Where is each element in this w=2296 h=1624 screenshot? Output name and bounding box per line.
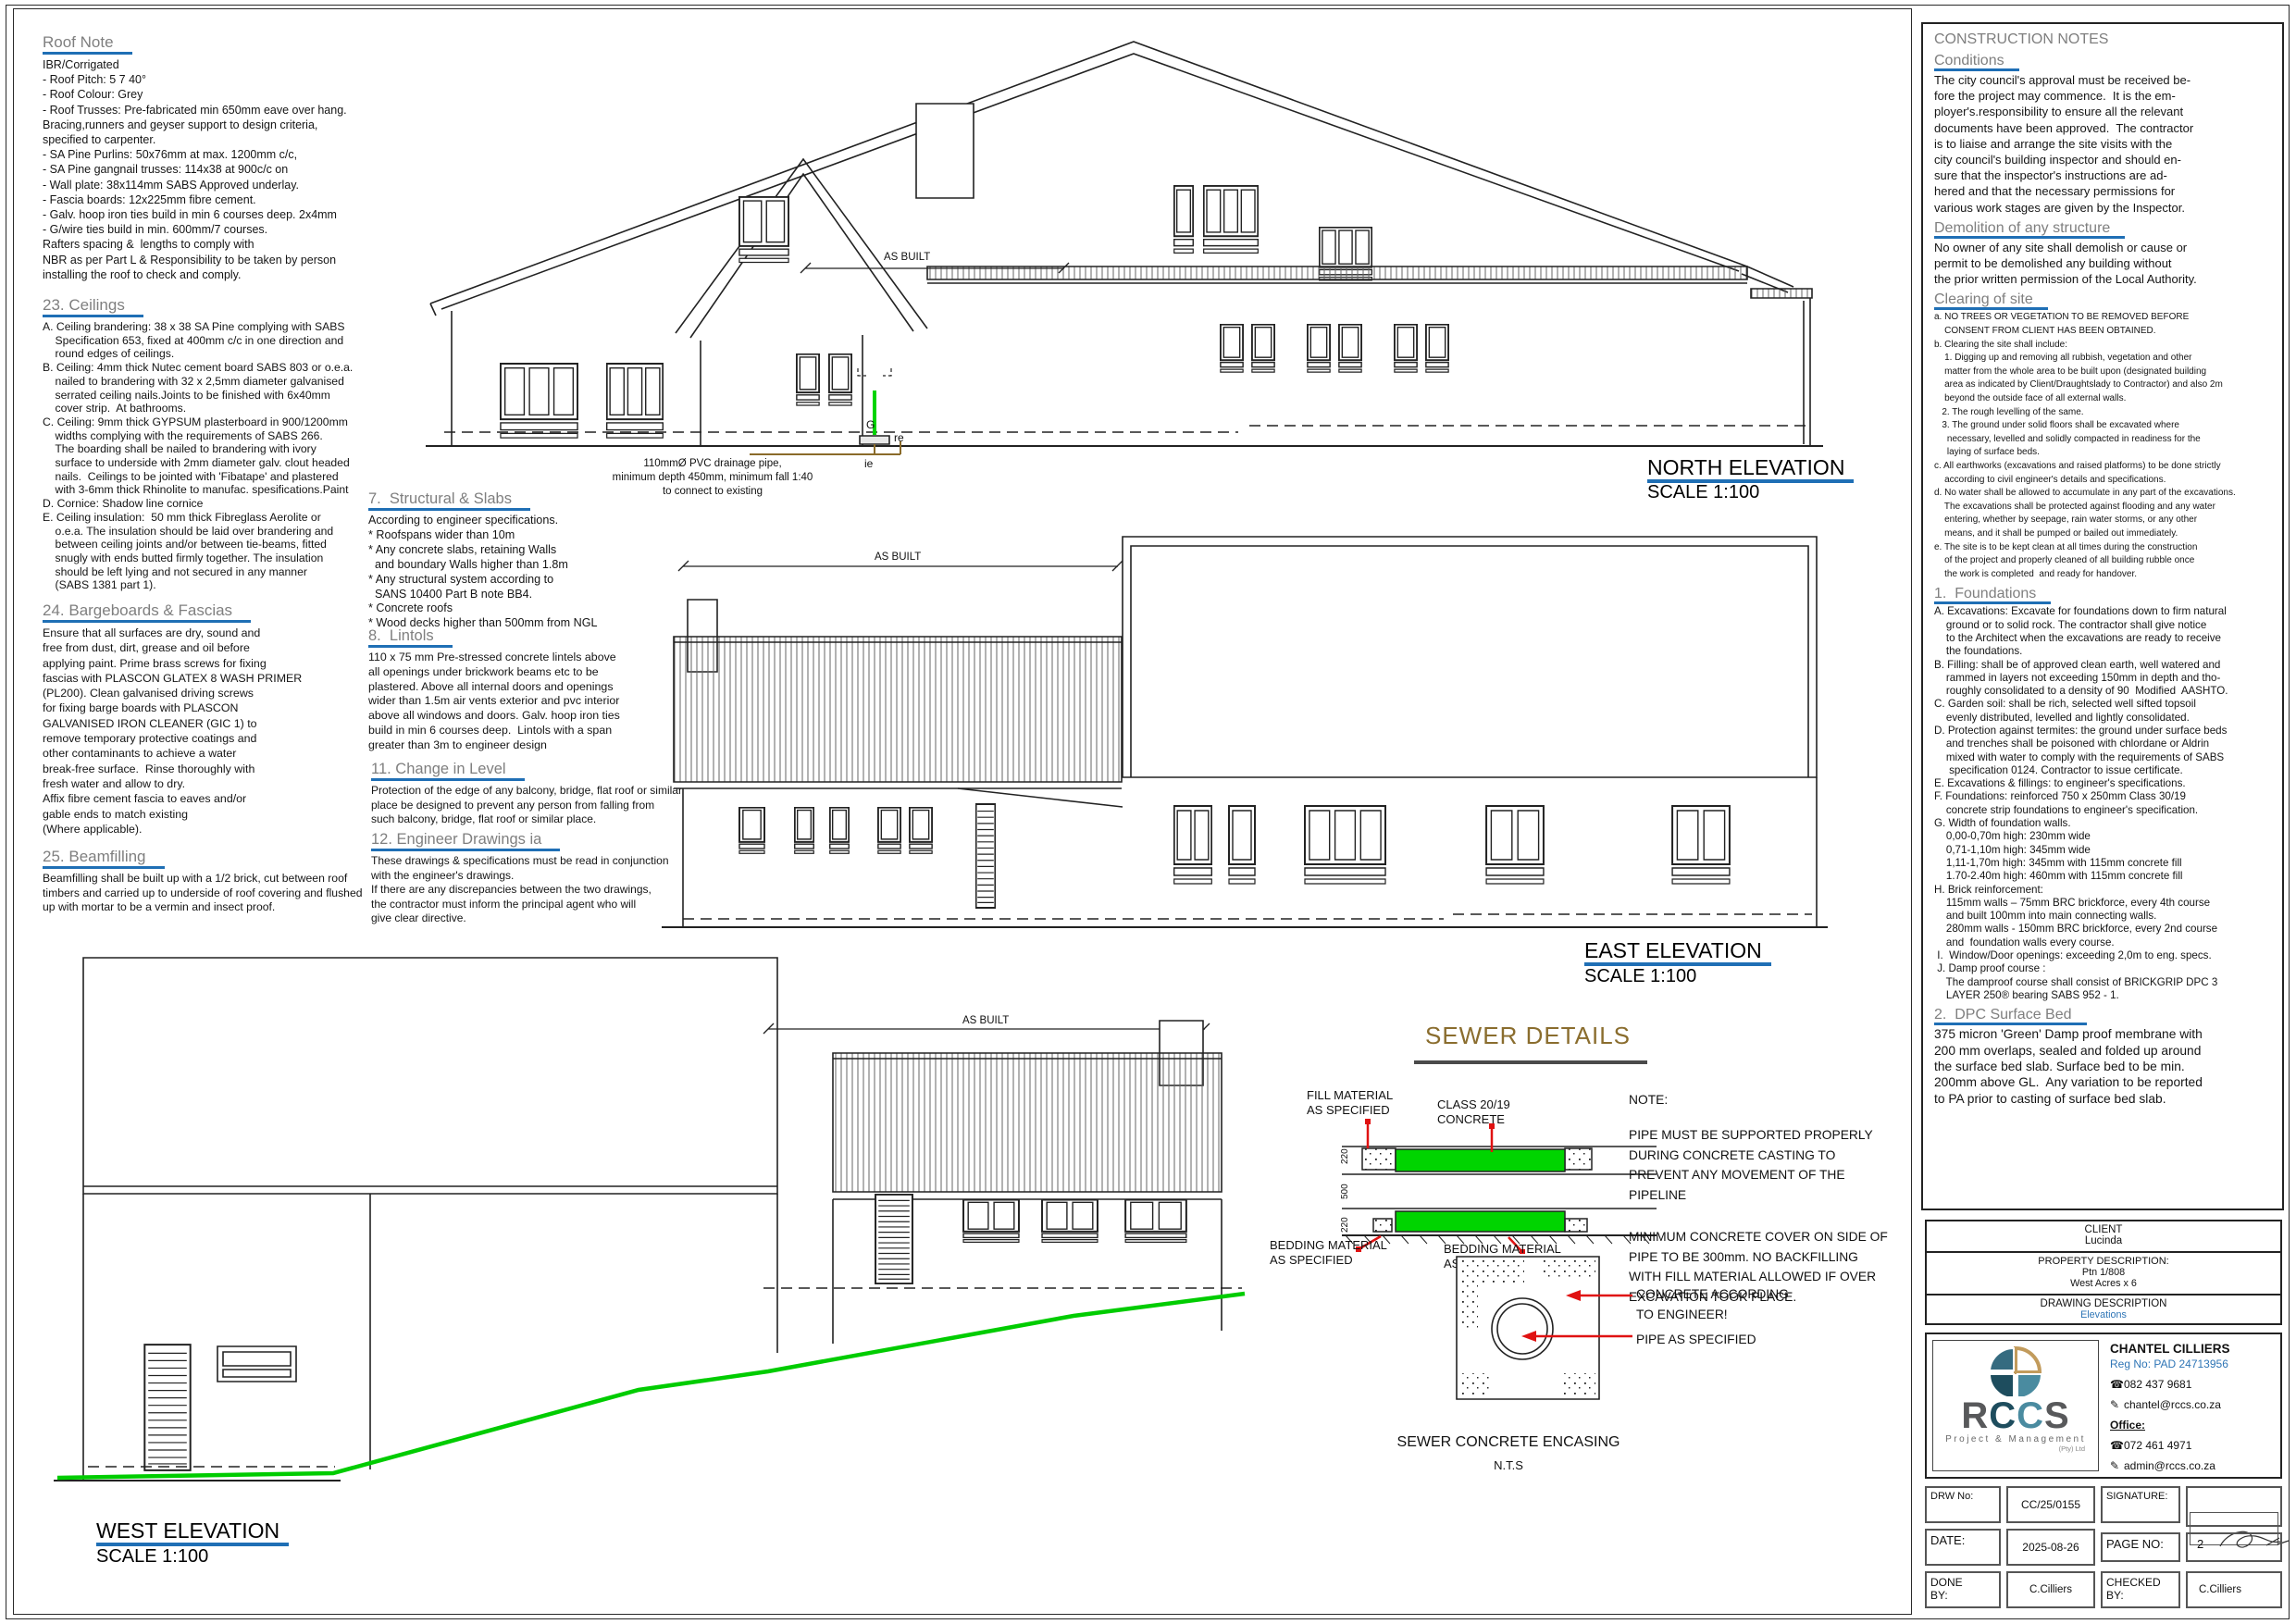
- signature-label-cell: SIGNATURE:: [2101, 1486, 2180, 1523]
- rccs-letter-r: R: [1961, 1395, 1989, 1436]
- drawing-sheet: Roof Note IBR/Corrigated - Roof Pitch: 5…: [0, 0, 2296, 1624]
- dpc-heading-text: 2. DPC Surface Bed: [1934, 1007, 2087, 1025]
- north-elevation-drawing: [416, 17, 1869, 507]
- east-as-built-label: AS BUILT: [875, 552, 921, 563]
- contact-email-1-value[interactable]: chantel@rccs.co.za: [2124, 1398, 2221, 1411]
- rccs-letter-c2: C: [2017, 1395, 2044, 1436]
- sewer-note-1: PIPE MUST BE SUPPORTED PROPERLY DURING C…: [1629, 1125, 1873, 1205]
- client-label: CLIENT: [1927, 1224, 2280, 1235]
- checked-by-label-cell: CHECKED BY:: [2101, 1571, 2180, 1608]
- north-gulley-label: G: [866, 418, 875, 431]
- east-elevation-scale: SCALE 1:100: [1584, 966, 1696, 987]
- contact-phone-1: ☎082 437 9681: [2110, 1378, 2278, 1391]
- engineer-drawings-title-text: 12. Engineer Drawings ia: [371, 831, 560, 851]
- sewer-encasing-nts: N.T.S: [1360, 1458, 1657, 1472]
- property-value-1: Ptn 1/808: [1927, 1267, 2280, 1278]
- done-by-label-cell: DONE BY:: [1925, 1571, 2001, 1608]
- encasing-pipe-label: PIPE AS SPECIFIED: [1636, 1330, 1756, 1350]
- contact-phone-1-value: 082 437 9681: [2124, 1378, 2191, 1391]
- west-elevation-title-text: WEST ELEVATION: [96, 1519, 289, 1546]
- construction-notes-panel: CONSTRUCTION NOTES Conditions The city c…: [1921, 22, 2284, 1210]
- page-no-label-cell: PAGE NO:: [2101, 1532, 2180, 1562]
- sewer-fill-material-label: FILL MATERIAL AS SPECIFIED: [1307, 1088, 1393, 1118]
- dpc-heading: 2. DPC Surface Bed: [1934, 1007, 2271, 1023]
- foundations-heading-text: 1. Foundations: [1934, 586, 2051, 604]
- drawing-description-cell: DRAWING DESCRIPTION Elevations: [1927, 1295, 2280, 1323]
- bargeboards-title-text: 24. Bargeboards & Fascias: [43, 601, 251, 623]
- clearing-heading: Clearing of site: [1934, 291, 2271, 308]
- date-value-cell: 2025-08-26: [2006, 1529, 2095, 1566]
- west-elevation-drawing: [46, 944, 1296, 1592]
- property-value-2: West Acres x 6: [1927, 1278, 2280, 1289]
- firm-block: RCCS Project & Management (Pty) Ltd CHAN…: [1925, 1333, 2282, 1479]
- roof-note-title: Roof Note: [43, 33, 464, 52]
- demolition-heading: Demolition of any structure: [1934, 220, 2271, 237]
- west-as-built-label: AS BUILT: [962, 1015, 1009, 1026]
- contact-phone-2-value: 072 461 4971: [2124, 1439, 2191, 1452]
- phone-icon: ☎: [2110, 1378, 2124, 1391]
- north-as-built-label: AS BUILT: [884, 252, 930, 263]
- sewer-note-label: NOTE:: [1629, 1090, 1668, 1110]
- checked-by-value-cell: C.Cilliers: [2186, 1571, 2282, 1608]
- sewer-title-underline: [1414, 1060, 1647, 1064]
- sewer-encasing-figure: [1440, 1247, 1653, 1423]
- property-label: PROPERTY DESCRIPTION:: [1927, 1256, 2280, 1267]
- drawing-description-label: DRAWING DESCRIPTION: [1927, 1298, 2280, 1309]
- sewer-class-concrete-label: CLASS 20/19 CONCRETE: [1437, 1097, 1510, 1127]
- signature-cell: [2186, 1486, 2282, 1527]
- change-level-title-text: 11. Change in Level: [371, 761, 525, 781]
- ceilings-title-text: 23. Ceilings: [43, 296, 143, 317]
- drw-no-label-cell: DRW No:: [1925, 1486, 2001, 1523]
- sewer-encasing-caption: SEWER CONCRETE ENCASING: [1360, 1434, 1657, 1451]
- sewer-bedding-label-1: BEDDING MATERIAL AS SPECIFIED: [1270, 1238, 1387, 1268]
- property-cell: PROPERTY DESCRIPTION: Ptn 1/808 West Acr…: [1927, 1253, 2280, 1295]
- construction-notes-title: CONSTRUCTION NOTES: [1934, 31, 2271, 48]
- client-value: Lucinda: [1927, 1235, 2280, 1246]
- contact-email-1: ✎chantel@rccs.co.za: [2110, 1398, 2278, 1411]
- footer-grid: DRW No: CC/25/0155 SIGNATURE: DATE: 2025…: [1925, 1486, 2282, 1610]
- demolition-heading-text: Demolition of any structure: [1934, 220, 2125, 239]
- north-ie-label: ie: [864, 457, 873, 470]
- east-elevation-title: EAST ELEVATION: [1584, 938, 1771, 963]
- date-label-cell: DATE:: [1925, 1529, 2001, 1566]
- sewer-details-title: SEWER DETAILS: [1425, 1022, 1631, 1050]
- sewer-dim-top: 220: [1340, 1148, 1350, 1164]
- foundations-heading: 1. Foundations: [1934, 586, 2271, 602]
- west-elevation-title: WEST ELEVATION: [96, 1519, 289, 1543]
- drawing-description-value: Elevations: [1927, 1309, 2280, 1320]
- done-by-value-cell: C.Cilliers: [2006, 1571, 2095, 1608]
- rccs-logo-cell: RCCS Project & Management (Pty) Ltd: [1932, 1340, 2099, 1471]
- rccs-pty-ltd: (Pty) Ltd: [1933, 1444, 2098, 1453]
- pen-icon: ✎: [2110, 1398, 2124, 1411]
- east-elevation-drawing: [648, 509, 1869, 944]
- clearing-body: a. NO TREES OR VEGETATION TO BE REMOVED …: [1934, 311, 2271, 581]
- foundations-body: A. Excavations: Excavate for foundations…: [1934, 605, 2271, 1002]
- north-pipe-note: 110mmØ PVC drainage pipe, minimum depth …: [574, 457, 851, 499]
- contact-email-2-value[interactable]: admin@rccs.co.za: [2124, 1459, 2215, 1472]
- rccs-petal-icon: [1934, 1345, 2097, 1396]
- sewer-dim-mid: 500: [1340, 1184, 1350, 1199]
- north-elevation-scale: SCALE 1:100: [1647, 482, 1759, 503]
- title-block: CLIENT Lucinda PROPERTY DESCRIPTION: Ptn…: [1925, 1220, 2282, 1325]
- rccs-wordmark: RCCS: [1933, 1399, 2098, 1432]
- contact-reg-no: Reg No: PAD 24713956: [2110, 1357, 2278, 1370]
- rccs-letter-s: S: [2044, 1395, 2070, 1436]
- sewer-dim-bot: 220: [1340, 1217, 1350, 1233]
- beamfilling-title-text: 25. Beamfilling: [43, 848, 165, 869]
- clearing-heading-text: Clearing of site: [1934, 291, 2048, 310]
- contact-phone-2: ☎072 461 4971: [2110, 1439, 2278, 1452]
- contact-name: CHANTEL CILLIERS: [2110, 1342, 2278, 1356]
- conditions-heading-text: Conditions: [1934, 53, 2019, 71]
- roof-note-section: Roof Note IBR/Corrigated - Roof Pitch: 5…: [43, 33, 464, 282]
- conditions-body: The city council's approval must be rece…: [1934, 72, 2271, 216]
- roof-note-body: IBR/Corrigated - Roof Pitch: 5 7 40° - R…: [43, 57, 464, 282]
- rccs-letter-c1: C: [1989, 1395, 2017, 1436]
- north-elevation-title: NORTH ELEVATION: [1647, 455, 1854, 480]
- conditions-heading: Conditions: [1934, 53, 2271, 69]
- drw-no-value-cell: CC/25/0155: [2006, 1486, 2095, 1523]
- contact-block: CHANTEL CILLIERS Reg No: PAD 24713956 ☎0…: [2110, 1342, 2278, 1472]
- north-elevation-title-text: NORTH ELEVATION: [1647, 455, 1854, 483]
- page-no-value-cell: 2: [2186, 1532, 2282, 1562]
- west-elevation-scale: SCALE 1:100: [96, 1546, 208, 1568]
- roof-note-title-text: Roof Note: [43, 33, 132, 55]
- office-label: Office:: [2110, 1419, 2278, 1432]
- lintols-title-text: 8. Lintols: [368, 627, 453, 648]
- phone-icon-2: ☎: [2110, 1439, 2124, 1452]
- contact-email-2: ✎admin@rccs.co.za: [2110, 1459, 2278, 1472]
- demolition-body: No owner of any site shall demolish or c…: [1934, 240, 2271, 288]
- sewer-pipe-section-figure: [1333, 1115, 1666, 1254]
- east-elevation-title-text: EAST ELEVATION: [1584, 938, 1771, 966]
- pen-icon-2: ✎: [2110, 1459, 2124, 1472]
- client-cell: CLIENT Lucinda: [1927, 1221, 2280, 1253]
- north-re-label: re: [894, 431, 904, 444]
- dpc-body: 375 micron 'Green' Damp proof membrane w…: [1934, 1026, 2271, 1107]
- ceilings-title: 23. Ceilings: [43, 296, 468, 315]
- rccs-subtitle: Project & Management: [1933, 1434, 2098, 1444]
- encasing-concrete-label: CONCRETE ACCORDING TO ENGINEER!: [1636, 1284, 1789, 1324]
